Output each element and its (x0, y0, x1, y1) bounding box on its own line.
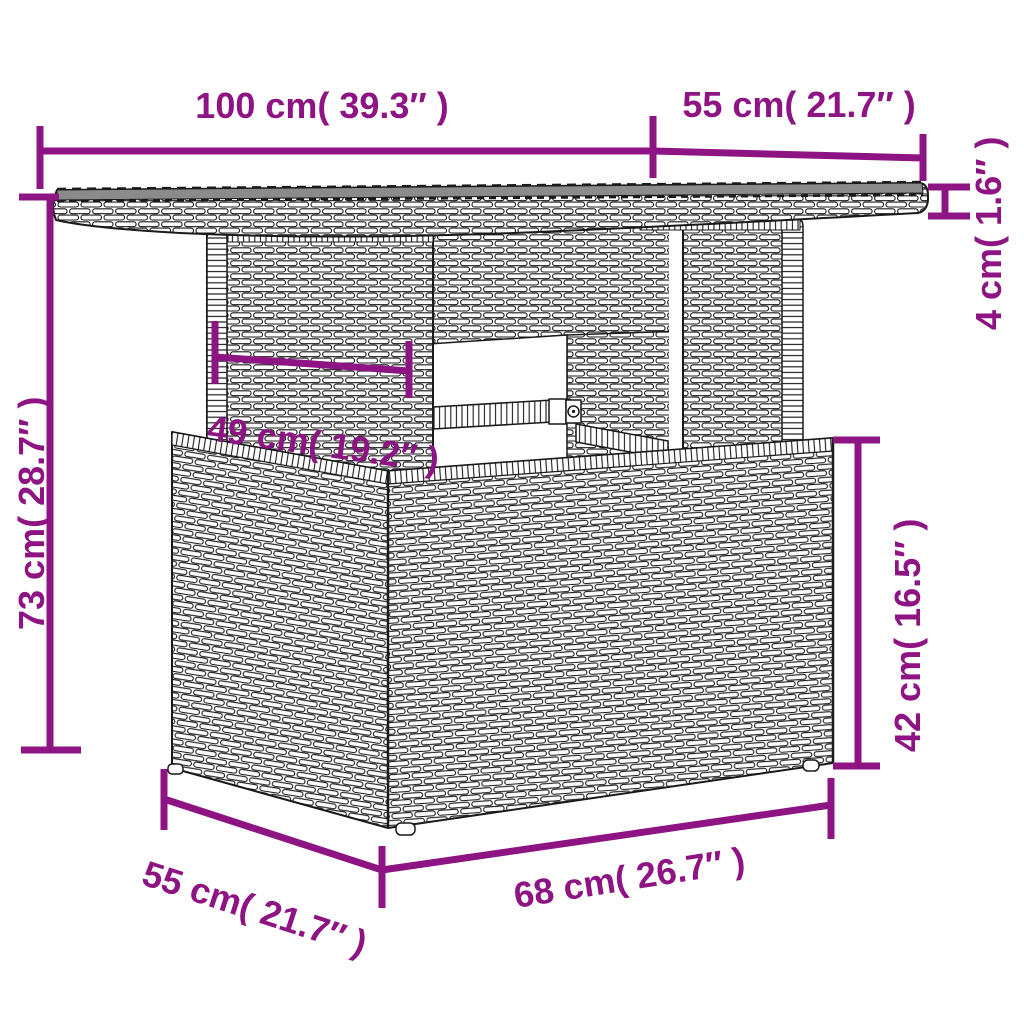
dim-label-base-height: 42 cm( 16.5″ ) (887, 519, 928, 752)
dim-base-height: 42 cm( 16.5″ ) (833, 440, 928, 766)
right-leg-panel (683, 216, 784, 462)
panel-seam (669, 219, 682, 462)
apron-panel (420, 224, 683, 345)
dim-label-tabletop-width: 100 cm( 39.3″ ) (195, 85, 448, 126)
dim-label-base-depth: 55 cm( 21.7″ ) (138, 853, 373, 964)
right-leg-corner-coil (782, 216, 803, 462)
base-front-face (388, 438, 833, 828)
dim-label-tabletop-thickness: 4 cm( 1.6″ ) (968, 137, 1009, 330)
dimension-diagram-figure: 100 cm( 39.3″ ) 55 cm( 21.7″ ) 4 cm( 1.6… (0, 0, 1024, 1024)
dim-tabletop-thickness: 4 cm( 1.6″ ) (928, 137, 1009, 330)
dim-line (653, 151, 923, 158)
dim-label-tabletop-depth: 55 cm( 21.7″ ) (682, 84, 915, 125)
dim-tabletop-depth: 55 cm( 21.7″ ) (653, 84, 923, 181)
table-illustration (53, 182, 928, 835)
dim-label-total-height: 73 cm( 28.7″ ) (11, 397, 52, 630)
dim-total-height: 73 cm( 28.7″ ) (11, 197, 81, 750)
dim-tabletop-width: 100 cm( 39.3″ ) (37, 85, 653, 189)
dim-label-base-width: 68 cm( 26.7″ ) (511, 839, 748, 916)
rail-bracket (549, 399, 566, 424)
base-left-face (172, 432, 388, 828)
table-foot-right (803, 760, 819, 771)
dimension-diagram: 100 cm( 39.3″ ) 55 cm( 21.7″ ) 4 cm( 1.6… (0, 0, 1024, 1024)
bracket-bolt-center (572, 410, 575, 413)
table-foot-front (396, 823, 415, 835)
table-foot-left (168, 764, 183, 774)
